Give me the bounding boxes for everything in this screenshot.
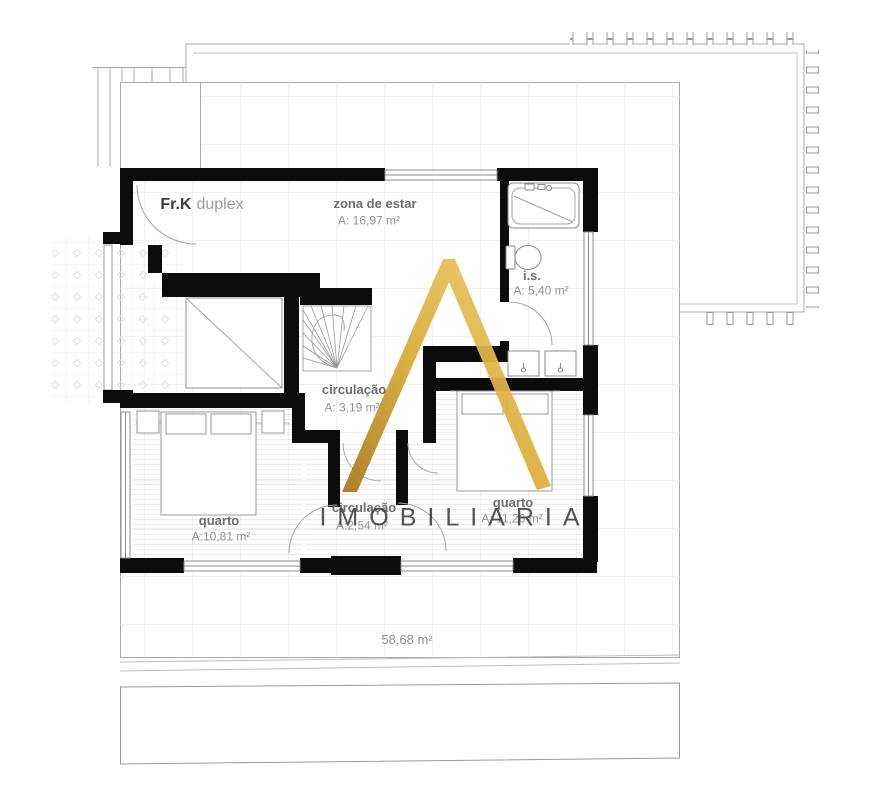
unit-type-label: Fr.Kduplex	[160, 196, 243, 214]
spiral-stairs	[303, 306, 371, 371]
shaft	[186, 298, 282, 388]
railing-bottom	[698, 312, 804, 325]
floor-plan-page: Fr.Kduplex zona de estar A: 16,97 m² i.s…	[0, 0, 896, 788]
room-area-living: A: 16,97 m²	[338, 214, 400, 227]
nightstand	[262, 411, 284, 433]
window-top	[385, 170, 497, 180]
faucet-icon	[525, 184, 534, 190]
bathtub	[508, 183, 579, 228]
railing-top	[570, 32, 804, 45]
window-bottom-right	[401, 561, 513, 571]
railing-right	[806, 50, 819, 308]
floor-plan-drawing	[0, 0, 896, 788]
room-area-bedroom-left: A:10,81 m²	[192, 530, 251, 543]
tiled-terrace	[52, 237, 183, 403]
window-bathroom-right	[584, 232, 593, 345]
unit-type: Fr.K	[160, 196, 191, 213]
watermark-text: IMOBILIARIA	[319, 504, 590, 533]
room-label-bathroom: i.s.	[523, 269, 541, 283]
room-label-bedroom-left: quarto	[199, 514, 239, 528]
bottom-band	[120, 655, 680, 764]
unit-type-suffix: duplex	[196, 196, 243, 213]
terrace-side-railing	[104, 245, 112, 390]
total-floor-area: 58,68 m²	[381, 633, 432, 647]
pillow	[166, 414, 206, 434]
room-area-bathroom: A: 5,40 m²	[513, 284, 568, 297]
room-label-living: zona de estar	[333, 197, 416, 211]
pillow	[211, 414, 251, 434]
room-label-circulation-upper: circulação	[322, 383, 386, 397]
window-bedroom-left	[121, 412, 130, 558]
pillow	[462, 394, 503, 414]
window-bedroom-right	[584, 415, 593, 496]
window-bottom-left	[184, 561, 300, 571]
room-area-circulation-upper: A: 3,19 m²	[324, 401, 379, 414]
toilet	[506, 246, 541, 270]
nightstand	[137, 411, 159, 433]
